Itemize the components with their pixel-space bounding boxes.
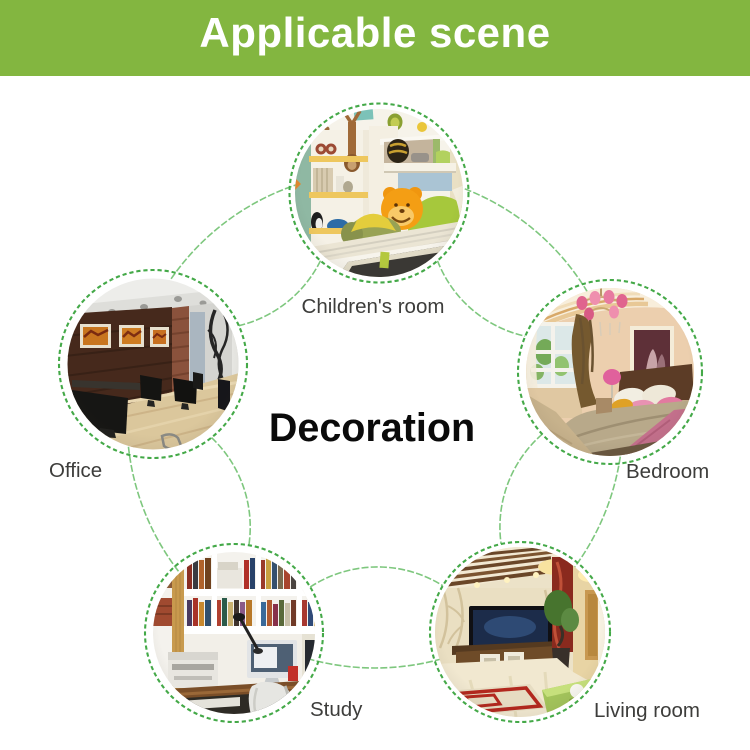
- svg-text:Living room: Living room: [594, 699, 700, 722]
- svg-text:Office: Office: [49, 459, 102, 482]
- svg-text:Decoration: Decoration: [269, 406, 475, 450]
- svg-text:Study: Study: [310, 698, 363, 721]
- svg-text:Bedroom: Bedroom: [626, 460, 709, 483]
- svg-text:Applicable scene: Applicable scene: [199, 9, 550, 56]
- svg-text:Children's room: Children's room: [302, 295, 445, 318]
